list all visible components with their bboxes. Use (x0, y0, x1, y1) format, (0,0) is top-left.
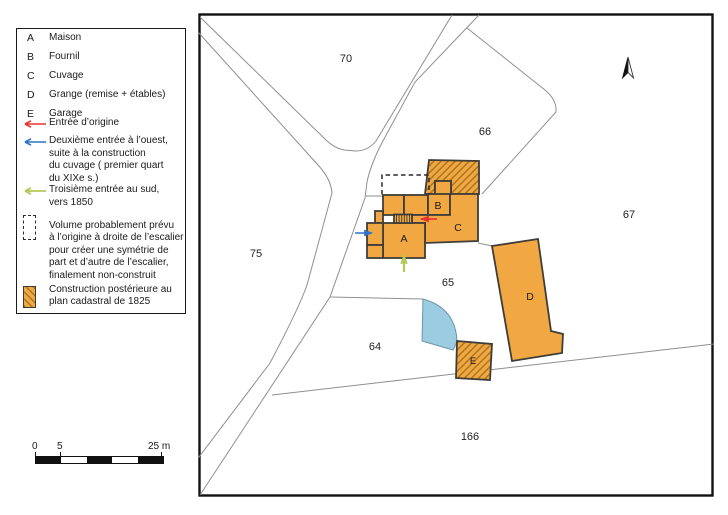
legend-entry-volume-line: pour créer une symétrie de (49, 245, 169, 257)
building-label-d: D (526, 291, 534, 303)
building-label-b: B (434, 200, 441, 212)
legend-item-grange: D Grange (remise + étables) (17, 89, 185, 105)
cadastral-plan-figure: A Maison B Fournil C Cuvage D Grange (re… (0, 0, 728, 515)
building-annex (367, 245, 383, 258)
legend-label: Fournil (49, 51, 80, 62)
legend-key: D (27, 89, 35, 101)
parcel-label-67: 67 (623, 209, 635, 221)
green-arrow-icon (21, 186, 47, 196)
building-annex (367, 223, 383, 245)
parcel-label-75: 75 (250, 248, 262, 260)
hatched-construction-icon (23, 286, 36, 308)
building-annex (375, 211, 383, 223)
parcel-label-65: 65 (442, 277, 454, 289)
legend-entry-volume-line: à l’origine à droite de l’escalier (49, 232, 184, 244)
blue-arrow-icon (21, 137, 47, 147)
building-room (383, 195, 404, 215)
scale-segment (138, 457, 163, 463)
legend-key: B (27, 51, 34, 63)
legend-entry-origin: Entrée d’origine (49, 117, 119, 129)
building-b-annex (435, 181, 451, 195)
legend-entry-construction-line: plan cadastral de 1825 (49, 296, 150, 308)
legend-entry-west-line: Deuxième entrée à l’ouest, (49, 135, 168, 147)
building-label-a: A (400, 233, 407, 245)
scale-segment (61, 457, 86, 463)
scale-tick-0: 0 (32, 441, 38, 452)
building-room (404, 195, 428, 215)
legend-box: A Maison B Fournil C Cuvage D Grange (re… (16, 28, 186, 314)
red-arrow-icon (21, 119, 47, 129)
legend-item-maison: A Maison (17, 32, 185, 48)
legend-label: Cuvage (49, 70, 83, 81)
cadastral-map: 70 66 67 75 65 64 166 A B C D E (198, 13, 714, 497)
building-post1825-extension (425, 160, 479, 194)
legend-key: A (27, 32, 34, 44)
parcel-label-166: 166 (461, 431, 479, 443)
legend-entry-west-line: suite à la construction (49, 148, 146, 160)
map-frame (200, 15, 713, 496)
building-label-e: E (470, 356, 476, 367)
legend-entry-construction-line: Construction postérieure au (49, 284, 172, 296)
scale-tick-25: 25 m (148, 441, 170, 452)
legend-entry-south-line: vers 1850 (49, 197, 93, 209)
legend-item-cuvage: C Cuvage (17, 70, 185, 86)
legend-item-fournil: B Fournil (17, 51, 185, 67)
parcel-label-64: 64 (369, 341, 381, 353)
scale-segment (36, 457, 61, 463)
scale-tick-5: 5 (57, 441, 63, 452)
scale-bar-segments (35, 456, 164, 464)
scale-segment (112, 457, 137, 463)
dashed-volume-icon (23, 215, 36, 240)
legend-entry-volume-line: part et d’autre de l’escalier, (49, 257, 169, 269)
scale-segment (87, 457, 112, 463)
building-label-c: C (454, 222, 462, 234)
parcel-label-70: 70 (340, 53, 352, 65)
legend-label: Maison (49, 32, 81, 43)
legend-label: Grange (remise + étables) (49, 89, 165, 100)
legend-entry-south-line: Troisième entrée au sud, (49, 184, 159, 196)
legend-entry-west-line: du cuvage ( premier quart (49, 160, 164, 172)
scale-bar: 0 5 25 m (30, 441, 175, 467)
legend-entry-volume-line: finalement non-construit (49, 270, 156, 282)
parcel-label-66: 66 (479, 126, 491, 138)
legend-key: C (27, 70, 35, 82)
legend-entry-volume-line: Volume probablement prévu (49, 220, 174, 232)
